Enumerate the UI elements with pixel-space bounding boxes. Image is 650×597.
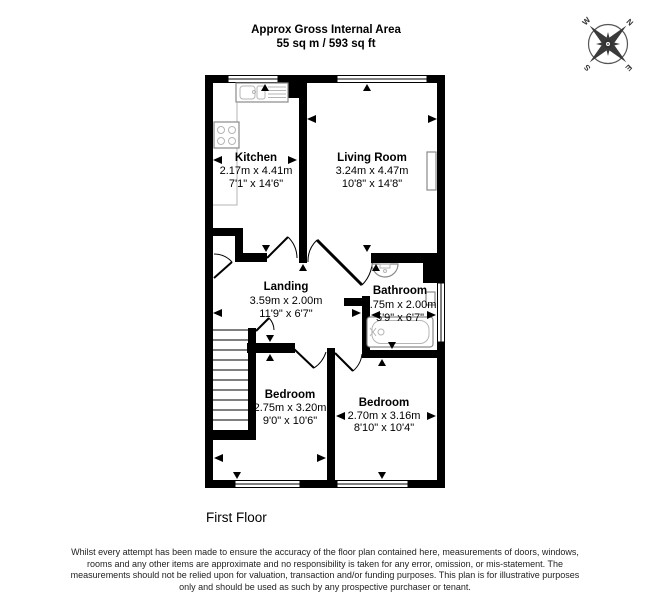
living-room-radiator xyxy=(427,152,436,190)
living-room-window xyxy=(337,76,427,83)
bathroom-imperial: 5'9" x 6'7" xyxy=(376,312,424,324)
bedroom2-metric: 2.70m x 3.16m xyxy=(348,410,421,422)
bathroom-window xyxy=(438,283,445,342)
compass-east-label: E xyxy=(623,63,634,74)
room-label-kitchen: Kitchen 2.17m x 4.41m 7'1" x 14'6" xyxy=(220,152,293,190)
stairs xyxy=(213,330,248,420)
bedroom2-door xyxy=(335,353,362,371)
bedroom2-window xyxy=(337,481,408,488)
bedroom1-metric: 2.75m x 3.20m xyxy=(254,402,327,414)
bathroom-metric: 1.75m x 2.00m xyxy=(364,299,437,311)
landing-name: Landing xyxy=(264,281,309,293)
living-room-name: Living Room xyxy=(337,152,407,164)
room-label-living-room: Living Room 3.24m x 4.47m 10'8" x 14'8" xyxy=(336,152,409,190)
kitchen-sink xyxy=(236,83,288,102)
floorplan-page: W N S E Approx Gross Internal Area 55 sq… xyxy=(0,0,650,597)
floorplan-drawing: W N S E Approx Gross Internal Area 55 sq… xyxy=(0,0,650,597)
bedroom1-name: Bedroom xyxy=(265,389,315,401)
living-room-metric: 3.24m x 4.47m xyxy=(336,165,409,177)
bedroom-divider xyxy=(327,348,335,488)
bedroom1-window xyxy=(235,481,300,488)
header-line1: Approx Gross Internal Area xyxy=(251,24,401,36)
living-and-bathroom-doors xyxy=(308,240,372,285)
landing-metric: 3.59m x 2.00m xyxy=(250,295,323,307)
kitchen-door xyxy=(267,237,297,258)
floor-label: First Floor xyxy=(206,510,267,525)
room-label-bedroom2: Bedroom 2.70m x 3.16m 8'10" x 10'4" xyxy=(348,397,421,434)
kitchen-living-divider xyxy=(299,83,307,263)
compass-west-label: W xyxy=(580,15,592,27)
kitchen-imperial: 7'1" x 14'6" xyxy=(229,178,283,190)
kitchen-window xyxy=(228,76,278,83)
living-room-imperial: 10'8" x 14'8" xyxy=(342,178,402,190)
compass-rose-icon: W N S E xyxy=(580,15,635,73)
understairs-cupboard-door xyxy=(214,254,232,278)
disclaimer-text: Whilst every attempt has been made to en… xyxy=(70,547,580,593)
room-label-landing: Landing 3.59m x 2.00m 11'9" x 6'7" xyxy=(250,281,323,320)
kitchen-metric: 2.17m x 4.41m xyxy=(220,165,293,177)
header: Approx Gross Internal Area 55 sq m / 593… xyxy=(251,24,401,50)
bedroom1-imperial: 9'0" x 10'6" xyxy=(263,415,317,427)
compass-south-label: S xyxy=(582,62,593,73)
bathroom-duct xyxy=(423,263,437,283)
kitchen-name: Kitchen xyxy=(235,152,277,164)
bathroom-name: Bathroom xyxy=(373,285,427,297)
bedroom2-imperial: 8'10" x 10'4" xyxy=(354,422,414,434)
landing-imperial: 11'9" x 6'7" xyxy=(259,308,312,320)
hob xyxy=(214,122,239,148)
bedroom1-door xyxy=(294,349,326,368)
bedroom2-name: Bedroom xyxy=(359,397,409,409)
room-label-bedroom1: Bedroom 2.75m x 3.20m 9'0" x 10'6" xyxy=(254,389,327,427)
header-line2: 55 sq m / 593 sq ft xyxy=(276,38,375,50)
